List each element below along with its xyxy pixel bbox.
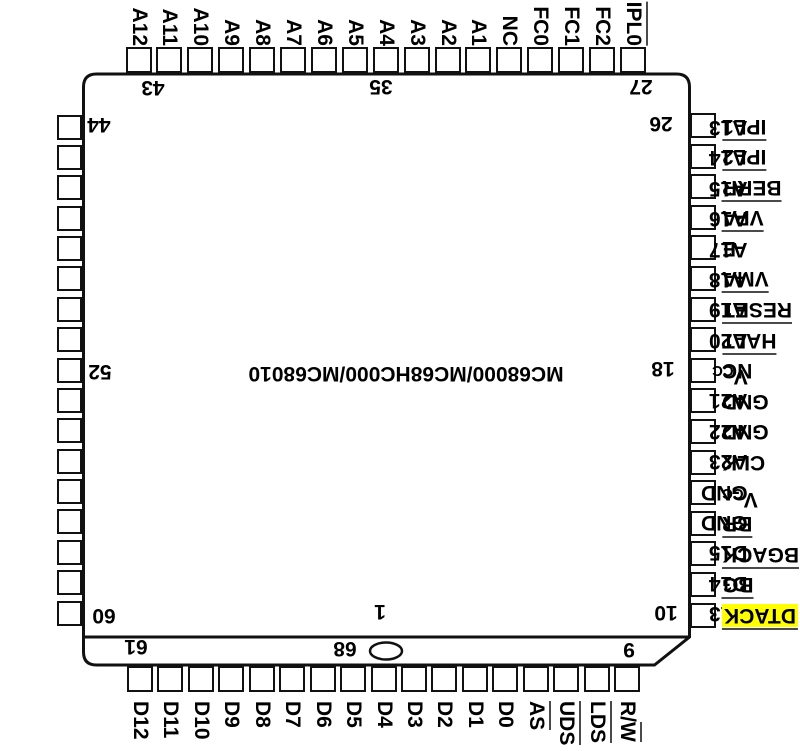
pin-number-26: 26: [649, 112, 672, 134]
pin-number-18: 18: [651, 357, 674, 379]
mc68000-plcc68-pinout-diagram: A12A11A10A9A8A7A6A5A4A3A2A1NCFC0FC1FC2IP…: [0, 0, 800, 751]
pin-number-68: 68: [333, 637, 356, 659]
pin-number-52: 52: [88, 360, 111, 382]
pin-number-60: 60: [92, 604, 115, 626]
chip-part-number: MC68000/MC68HC000/MC68010: [248, 361, 563, 385]
pin-number-27: 27: [629, 75, 652, 97]
pin-number-44: 44: [87, 113, 110, 135]
pin-number-10: 10: [654, 601, 677, 623]
pin-number-43: 43: [141, 76, 164, 98]
pin-number-1: 1: [374, 600, 386, 622]
pin-number-35: 35: [369, 75, 392, 97]
pin-number-61: 61: [124, 635, 147, 657]
pin-number-9: 9: [623, 638, 635, 660]
